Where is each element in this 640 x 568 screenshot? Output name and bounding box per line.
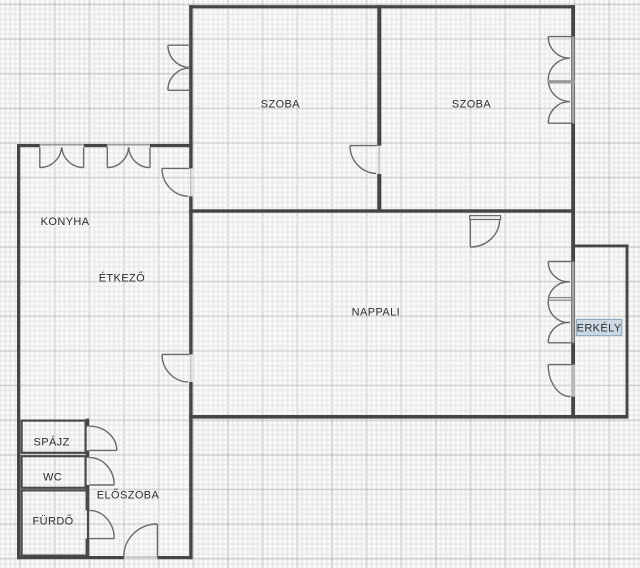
svg-text:FÜRDŐ: FÜRDŐ [33, 514, 74, 528]
svg-text:ÉTKEZŐ: ÉTKEZŐ [99, 271, 145, 285]
svg-text:WC: WC [43, 471, 62, 483]
svg-text:SZOBA: SZOBA [261, 98, 301, 110]
svg-text:ELŐSZOBA: ELŐSZOBA [97, 487, 160, 501]
svg-text:NAPPALI: NAPPALI [352, 307, 400, 319]
svg-text:ERKÉLY: ERKÉLY [577, 322, 622, 335]
svg-text:SZOBA: SZOBA [452, 98, 492, 110]
svg-text:SPÁJZ: SPÁJZ [33, 435, 69, 448]
svg-text:KONYHA: KONYHA [41, 216, 90, 228]
